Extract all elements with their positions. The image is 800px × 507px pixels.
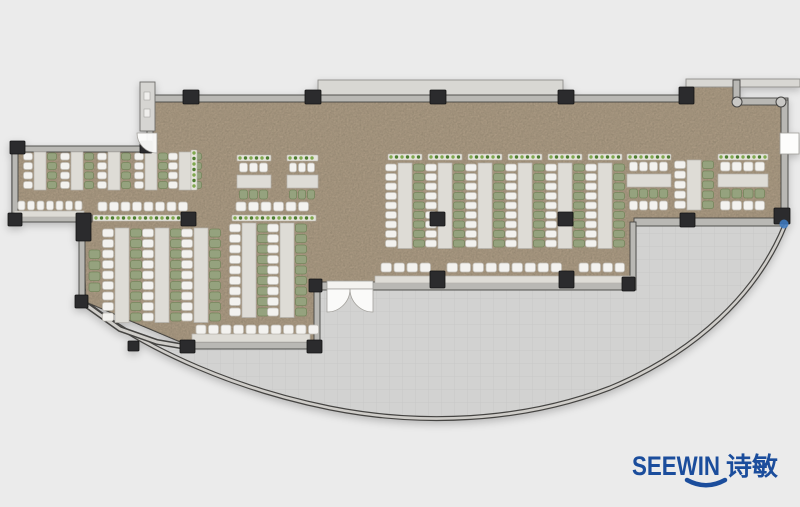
chair-white xyxy=(98,163,107,170)
chair-white xyxy=(426,231,437,238)
planter-plant-dot xyxy=(451,155,454,158)
planter-plant-dot xyxy=(244,156,247,159)
chair-white xyxy=(640,201,648,210)
planter-plant-dot xyxy=(435,155,438,158)
chair-green xyxy=(614,221,625,228)
chair-white xyxy=(24,172,33,179)
chair-white xyxy=(675,181,686,189)
chair-white xyxy=(167,202,176,211)
chair-white xyxy=(466,164,477,171)
chair-white xyxy=(221,325,231,334)
planter-plant-dot xyxy=(628,155,631,158)
floor-plan-canvas: SEEWIN 诗敏 xyxy=(0,0,800,507)
chair-green xyxy=(171,313,182,321)
chair-white xyxy=(386,174,397,181)
wall-segment xyxy=(188,342,318,349)
desk-table-strip xyxy=(280,223,294,318)
chair-white xyxy=(230,277,241,285)
chair-green xyxy=(494,164,505,171)
chair-white xyxy=(586,240,597,247)
desk-table-strip xyxy=(115,228,129,323)
chair-green xyxy=(260,190,268,199)
wall-segment xyxy=(12,146,150,152)
planter-plant-dot xyxy=(305,156,308,159)
planter-plant-dot xyxy=(105,216,108,219)
chair-white xyxy=(650,162,658,171)
chair-white xyxy=(386,231,397,238)
chair-white xyxy=(309,325,319,334)
chair-green xyxy=(171,250,182,258)
planter-plant-dot xyxy=(531,155,534,158)
chair-green xyxy=(414,202,425,209)
planter-plant-dot xyxy=(127,216,130,219)
chair-green xyxy=(614,240,625,247)
chair-white xyxy=(546,240,557,247)
chair-white xyxy=(732,162,742,171)
desk-table-strip xyxy=(598,163,612,249)
chair-white xyxy=(466,240,477,247)
chair-white xyxy=(56,201,63,210)
chair-green xyxy=(308,190,315,199)
chair-white xyxy=(268,256,279,264)
chair-white xyxy=(103,240,114,248)
chair-white xyxy=(121,202,130,211)
chair-green xyxy=(48,153,57,160)
structural-column xyxy=(8,213,22,226)
chair-green xyxy=(414,231,425,238)
chair-white xyxy=(143,292,154,300)
planter-plant-dot xyxy=(389,155,392,158)
chair-green xyxy=(258,308,269,316)
chair-green xyxy=(258,256,269,264)
chair-green xyxy=(755,189,765,198)
chair-white xyxy=(240,163,248,172)
chair-white xyxy=(143,261,154,269)
chair-green xyxy=(660,189,668,198)
structural-column xyxy=(622,277,635,291)
chair-white xyxy=(234,325,244,334)
chair-green xyxy=(85,163,94,170)
chair-green xyxy=(454,183,465,190)
chair-white xyxy=(615,263,625,272)
chair-green xyxy=(494,231,505,238)
desk-table-strip xyxy=(145,152,157,190)
chair-green xyxy=(159,153,168,160)
chair-white xyxy=(586,212,597,219)
chair-white xyxy=(473,263,484,272)
chair-white xyxy=(75,201,82,210)
planter-plant-dot xyxy=(288,216,291,219)
planter-plant-dot xyxy=(177,216,180,219)
chair-green xyxy=(454,212,465,219)
chair-white xyxy=(721,201,731,210)
chair-white xyxy=(209,325,219,334)
planter-plant-dot xyxy=(758,155,761,158)
planter-plant-dot xyxy=(526,155,529,158)
chair-green xyxy=(171,303,182,311)
planter-plant-dot xyxy=(305,216,308,219)
planter-plant-dot xyxy=(491,155,494,158)
chair-white xyxy=(230,308,241,316)
chair-green xyxy=(534,221,545,228)
planter-plant-dot xyxy=(244,216,247,219)
chair-green xyxy=(574,240,585,247)
planter-plant-dot xyxy=(406,155,409,158)
chair-white xyxy=(182,271,193,279)
chair-green xyxy=(574,202,585,209)
planter-plant-dot xyxy=(94,216,97,219)
chair-white xyxy=(24,182,33,189)
chair-green xyxy=(131,292,142,300)
chair-white xyxy=(103,261,114,269)
planter-plant-dot xyxy=(730,155,733,158)
chair-white xyxy=(182,303,193,311)
planter-plant-dot xyxy=(411,155,414,158)
chair-green xyxy=(614,174,625,181)
chair-white xyxy=(466,202,477,209)
chair-white xyxy=(135,163,144,170)
chair-green xyxy=(171,271,182,279)
planter-plant-dot xyxy=(537,155,540,158)
chair-white xyxy=(135,182,144,189)
chair-white xyxy=(61,163,70,170)
chair-green xyxy=(534,174,545,181)
chair-white xyxy=(47,201,54,210)
chair-white xyxy=(386,212,397,219)
chair-white xyxy=(98,153,107,160)
chair-green xyxy=(171,261,182,269)
planter-plant-dot xyxy=(400,155,403,158)
desk-table-strip xyxy=(558,163,572,249)
desk-table-strip xyxy=(518,163,532,249)
chair-white xyxy=(103,313,114,321)
planter-plant-dot xyxy=(160,216,163,219)
structural-column xyxy=(183,90,199,104)
chair-green xyxy=(296,287,307,295)
chair-white xyxy=(143,313,154,321)
chair-green xyxy=(89,272,100,281)
chair-green xyxy=(614,212,625,219)
chair-white xyxy=(103,271,114,279)
chair-white xyxy=(506,231,517,238)
chair-green xyxy=(131,261,142,269)
chair-green xyxy=(414,212,425,219)
planter-plant-dot xyxy=(725,155,728,158)
planter-plant-dot xyxy=(661,155,664,158)
entry-fixture xyxy=(144,92,150,100)
chair-white xyxy=(546,202,557,209)
chair-white xyxy=(591,263,601,272)
planter-plant-dot xyxy=(294,216,297,219)
chair-white xyxy=(586,202,597,209)
floor-plan-stage: SEEWIN 诗敏 xyxy=(0,0,800,507)
structural-column xyxy=(430,90,446,104)
planter-plant-dot xyxy=(457,155,460,158)
chair-white xyxy=(61,172,70,179)
chair-white xyxy=(103,292,114,300)
chair-green xyxy=(454,164,465,171)
structural-column xyxy=(76,213,91,241)
desk-table-strip xyxy=(398,163,412,249)
chair-white xyxy=(308,163,315,172)
chair-green xyxy=(210,313,221,321)
chair-white xyxy=(506,202,517,209)
desk-table-strip xyxy=(478,163,492,249)
chair-white xyxy=(169,153,178,160)
chair-white xyxy=(66,201,73,210)
structural-column xyxy=(679,87,694,104)
chair-white xyxy=(143,250,154,258)
chair-white xyxy=(249,202,259,211)
chair-green xyxy=(296,277,307,285)
chair-white xyxy=(274,202,284,211)
chair-white xyxy=(381,263,392,272)
chair-white xyxy=(28,201,35,210)
planter-plant-dot xyxy=(634,155,637,158)
planter-plant-dot xyxy=(272,216,275,219)
chair-green xyxy=(131,271,142,279)
planter-plant-dot xyxy=(747,155,750,158)
chair-green xyxy=(48,163,57,170)
chair-white xyxy=(268,308,279,316)
chair-green xyxy=(574,193,585,200)
chair-white xyxy=(426,202,437,209)
chair-green xyxy=(258,277,269,285)
chair-white xyxy=(755,201,765,210)
chair-green xyxy=(48,182,57,189)
planter-plant-dot xyxy=(192,179,195,182)
planter-plant-dot xyxy=(736,155,739,158)
desk-table-strip xyxy=(627,174,671,187)
chair-green xyxy=(171,292,182,300)
chair-white xyxy=(296,325,306,334)
chair-green xyxy=(494,240,505,247)
planter-plant-dot xyxy=(639,155,642,158)
chair-green xyxy=(574,183,585,190)
chair-white xyxy=(386,193,397,200)
chair-white xyxy=(271,325,281,334)
brand-logo-chinese: 诗敏 xyxy=(726,452,778,481)
chair-green xyxy=(614,202,625,209)
chair-green xyxy=(296,235,307,243)
counter-table xyxy=(14,211,84,217)
chair-white xyxy=(721,162,731,171)
chair-white xyxy=(386,183,397,190)
chair-green xyxy=(574,221,585,228)
chair-white xyxy=(744,201,754,210)
chair-white xyxy=(179,202,188,211)
chair-white xyxy=(426,174,437,181)
chair-white xyxy=(546,183,557,190)
chair-white xyxy=(546,164,557,171)
chair-green xyxy=(614,193,625,200)
chair-white xyxy=(486,263,497,272)
chair-white xyxy=(420,263,431,272)
chair-white xyxy=(103,229,114,237)
chair-green xyxy=(85,153,94,160)
chair-white xyxy=(260,163,268,172)
chair-white xyxy=(143,271,154,279)
planter-plant-dot xyxy=(417,155,420,158)
planter-plant-dot xyxy=(656,155,659,158)
chair-white xyxy=(156,202,165,211)
structural-column xyxy=(559,271,574,288)
wall-segment xyxy=(150,95,690,102)
chair-green xyxy=(131,313,142,321)
chair-white xyxy=(268,266,279,274)
chair-green xyxy=(534,231,545,238)
planter-plant-dot xyxy=(480,155,483,158)
chair-green xyxy=(494,212,505,219)
chair-white xyxy=(506,240,517,247)
chair-white xyxy=(586,193,597,200)
chair-white xyxy=(546,212,557,219)
chair-green xyxy=(258,287,269,295)
wall-segment xyxy=(781,100,788,224)
chair-green xyxy=(131,250,142,258)
planter-plant-dot xyxy=(166,216,169,219)
chair-white xyxy=(579,263,589,272)
chair-white xyxy=(732,201,742,210)
planter-plant-dot xyxy=(509,155,512,158)
desk-table-strip xyxy=(718,174,768,187)
chair-green xyxy=(296,245,307,253)
chair-white xyxy=(386,221,397,228)
planter-plant-dot xyxy=(192,157,195,160)
chair-white xyxy=(426,183,437,190)
chair-white xyxy=(394,263,405,272)
desk-table-strip xyxy=(71,152,83,190)
structural-column xyxy=(558,212,573,226)
chair-green xyxy=(534,212,545,219)
chair-white xyxy=(182,250,193,258)
chair-green xyxy=(131,282,142,290)
chair-white xyxy=(675,171,686,179)
chair-green xyxy=(296,224,307,232)
chair-white xyxy=(466,174,477,181)
chair-green xyxy=(258,224,269,232)
planter-plant-dot xyxy=(149,216,152,219)
planter-plant-dot xyxy=(667,155,670,158)
chair-white xyxy=(230,266,241,274)
chair-white xyxy=(386,164,397,171)
structural-column xyxy=(558,90,574,104)
chair-green xyxy=(210,292,221,300)
wall-corner-joint xyxy=(776,97,786,107)
chair-green xyxy=(414,193,425,200)
chair-white xyxy=(133,202,142,211)
chair-green xyxy=(296,256,307,264)
planter-plant-dot xyxy=(549,155,552,158)
planter-plant-dot xyxy=(650,155,653,158)
entry-fixture xyxy=(144,109,150,117)
chair-green xyxy=(250,190,258,199)
chair-green xyxy=(210,229,221,237)
wall-segment xyxy=(314,288,320,348)
chair-green xyxy=(258,298,269,306)
planter-plant-dot xyxy=(566,155,569,158)
planter-plant-dot xyxy=(133,216,136,219)
chair-white xyxy=(426,164,437,171)
chair-green xyxy=(703,201,714,209)
chair-white xyxy=(290,163,297,172)
chair-green xyxy=(732,189,742,198)
chair-green xyxy=(744,189,754,198)
chair-green xyxy=(703,171,714,179)
chair-white xyxy=(230,224,241,232)
chair-green xyxy=(534,164,545,171)
chair-white xyxy=(182,229,193,237)
chair-white xyxy=(261,202,271,211)
planter-plant-dot xyxy=(255,216,258,219)
planter-plant-dot xyxy=(560,155,563,158)
chair-green xyxy=(85,182,94,189)
chair-green xyxy=(534,193,545,200)
chair-white xyxy=(18,201,25,210)
structural-column xyxy=(430,212,445,226)
chair-green xyxy=(299,190,306,199)
chair-white xyxy=(37,201,44,210)
chair-green xyxy=(574,212,585,219)
planter-plant-dot xyxy=(299,156,302,159)
chair-white xyxy=(744,162,754,171)
planter-plant-dot xyxy=(192,151,195,154)
chair-green xyxy=(574,174,585,181)
chair-green xyxy=(210,261,221,269)
chair-white xyxy=(182,261,193,269)
chair-white xyxy=(426,240,437,247)
planter-plant-dot xyxy=(294,156,297,159)
chair-green xyxy=(89,261,100,270)
chair-white xyxy=(506,221,517,228)
chair-white xyxy=(506,212,517,219)
chair-white xyxy=(182,292,193,300)
chair-white xyxy=(512,263,523,272)
chair-green xyxy=(414,183,425,190)
planter-plant-dot xyxy=(606,155,609,158)
chair-green xyxy=(630,189,638,198)
chair-white xyxy=(660,162,668,171)
chair-white xyxy=(61,182,70,189)
planter-plant-dot xyxy=(171,216,174,219)
chair-white xyxy=(630,162,638,171)
chair-white xyxy=(675,201,686,209)
desk-table-strip xyxy=(687,160,701,210)
planter-plant-dot xyxy=(515,155,518,158)
chair-green xyxy=(122,182,131,189)
chair-green xyxy=(171,229,182,237)
chair-white xyxy=(268,277,279,285)
planter-plant-dot xyxy=(469,155,472,158)
planter-plant-dot xyxy=(238,156,241,159)
chair-white xyxy=(386,240,397,247)
chair-green xyxy=(210,271,221,279)
planter-plant-dot xyxy=(395,155,398,158)
planter-plant-dot xyxy=(600,155,603,158)
chair-white xyxy=(268,235,279,243)
chair-white xyxy=(143,240,154,248)
planter-plant-dot xyxy=(266,216,269,219)
planter-plant-dot xyxy=(277,216,280,219)
chair-green xyxy=(414,240,425,247)
chair-green xyxy=(703,161,714,169)
chair-green xyxy=(258,245,269,253)
terrace-door-frame xyxy=(327,281,373,289)
chair-green xyxy=(614,164,625,171)
entry-vestibule xyxy=(140,82,155,131)
structural-column xyxy=(10,141,25,154)
structural-column xyxy=(75,295,88,308)
